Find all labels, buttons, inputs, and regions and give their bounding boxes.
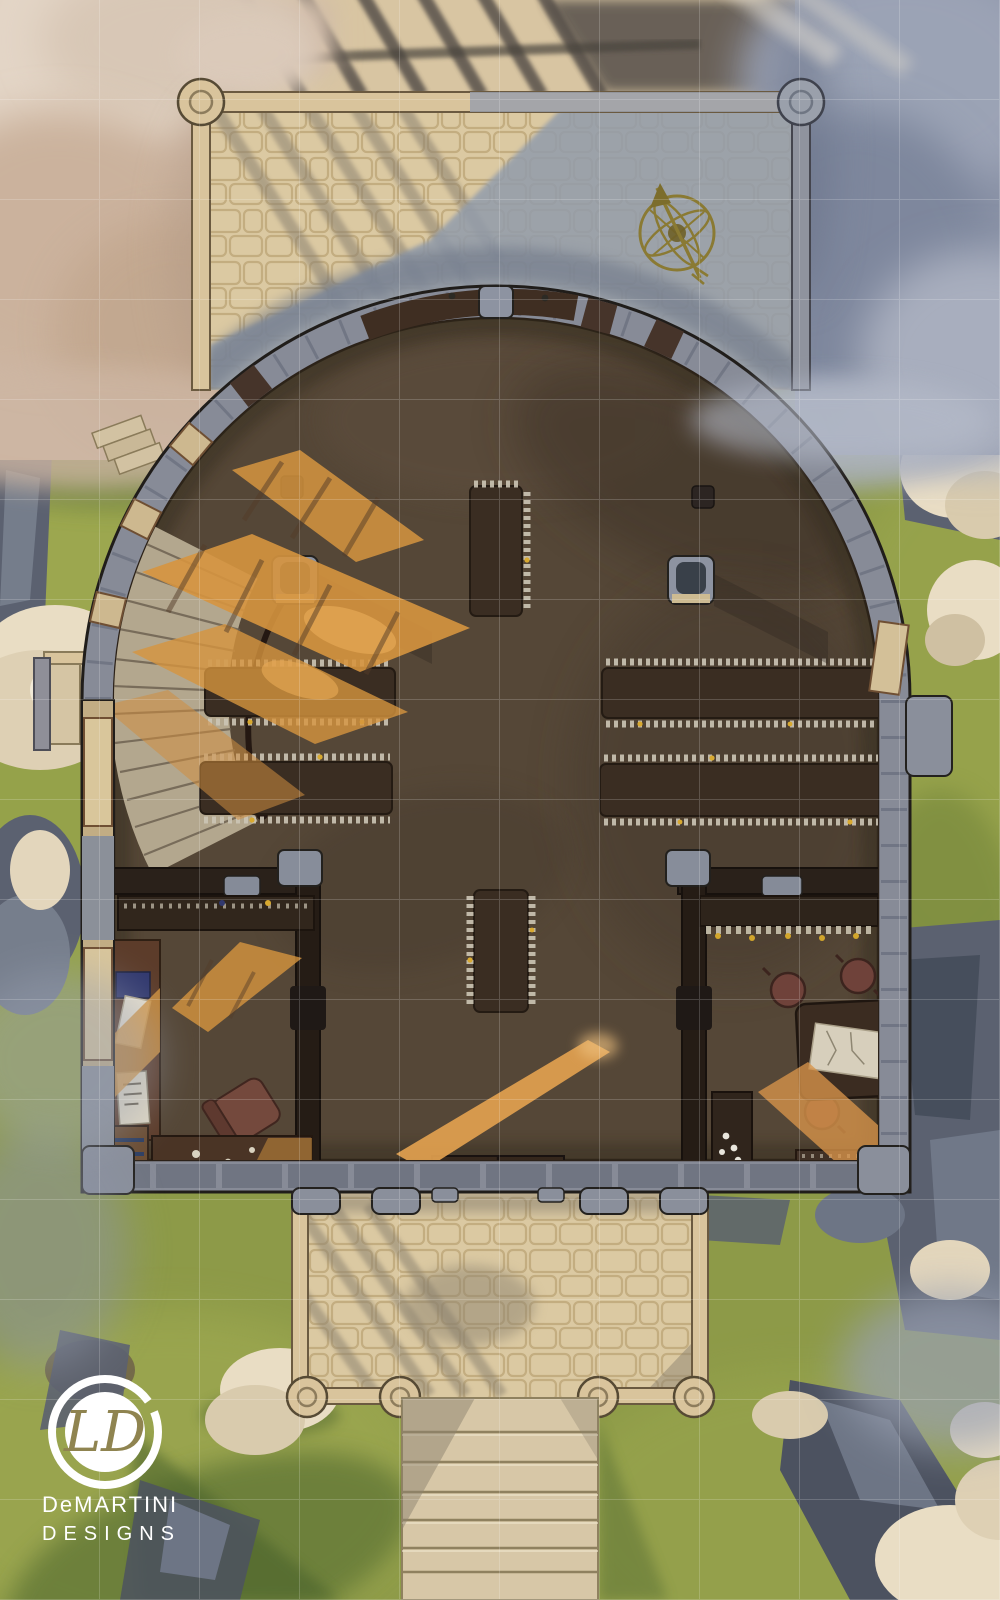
watermark-line2: DESIGNS bbox=[42, 1523, 181, 1545]
map-canvas: LD DeMARTINI DESIGNS bbox=[0, 0, 1000, 1600]
battle-map: LD DeMARTINI DESIGNS bbox=[0, 0, 1000, 1600]
logo-monogram: LD bbox=[63, 1400, 146, 1465]
watermark-line1: DeMARTINI bbox=[42, 1492, 178, 1517]
map-grid-overlay bbox=[0, 0, 1000, 1600]
